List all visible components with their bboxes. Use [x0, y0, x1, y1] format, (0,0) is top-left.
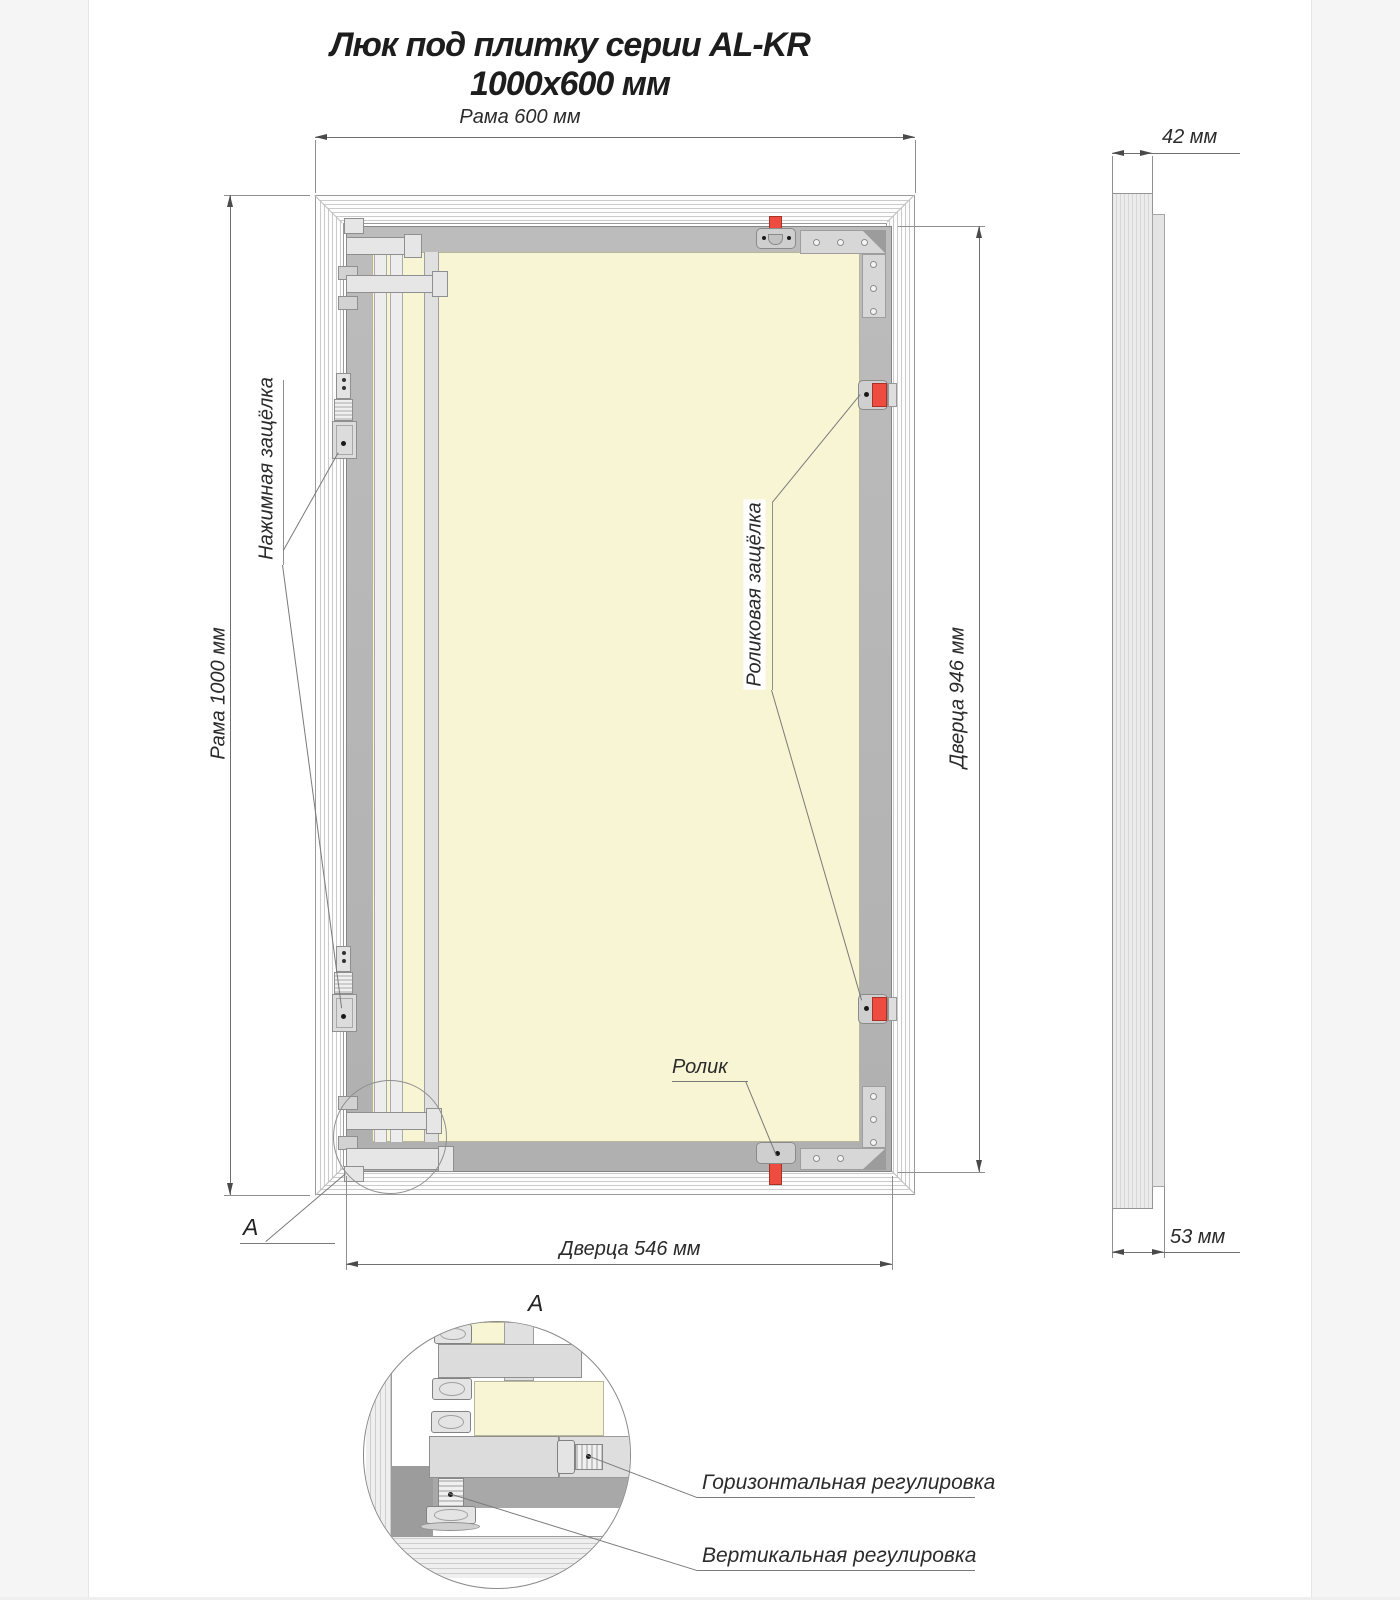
extension-line	[224, 195, 310, 196]
page-gutter-right	[1311, 0, 1400, 1600]
extension-line	[915, 140, 916, 193]
hinge-arm-bracket	[404, 234, 422, 258]
leader-shelf	[772, 502, 773, 690]
detail-hinge-arm-upper	[438, 1344, 582, 1378]
page-gutter-left	[0, 0, 89, 1600]
detail-frame-left-band	[366, 1322, 392, 1536]
roller-latch-lower	[856, 990, 902, 1028]
push-latch-head	[336, 373, 351, 399]
push-latch-spring	[334, 399, 353, 421]
dim-line-depth-frame	[1112, 153, 1240, 154]
dim-arrow	[227, 195, 233, 207]
label-roller-latch-text: Роликовая защёлка	[744, 499, 766, 689]
detail-a-label-main: A	[243, 1214, 258, 1241]
dim-text-depth-frame: 42 мм	[1162, 126, 1217, 149]
hinge-arm-lower	[346, 275, 438, 293]
dim-line-depth-total	[1112, 1252, 1240, 1253]
label-underline	[672, 1081, 748, 1082]
push-latch-lower	[332, 946, 358, 1032]
dim-line-door-height	[979, 226, 980, 1172]
detail-bolt	[434, 1324, 472, 1344]
push-latch-upper	[332, 373, 358, 459]
dim-text-door-width: Дверца 546 мм	[530, 1238, 730, 1261]
extension-line	[898, 226, 985, 227]
drawing-page: Люк под плитку серии AL-KR 1000x600 мм	[0, 0, 1400, 1600]
extension-line	[898, 1172, 985, 1173]
detail-a-marker-circle	[333, 1080, 447, 1194]
detail-frame-bottom-band	[364, 1536, 631, 1578]
dim-text-door-height: Дверца 946 мм	[947, 613, 970, 783]
roller-bottom	[756, 1142, 798, 1188]
label-horizontal-adjustment: Горизонтальная регулировка	[702, 1471, 995, 1495]
roller-latch-keeper	[888, 383, 897, 407]
corner-bracket-bottom-right	[800, 1086, 886, 1172]
roller-top	[756, 216, 798, 250]
leader-dot	[864, 1006, 869, 1011]
dim-text-frame-height: Рама 1000 мм	[208, 614, 231, 774]
detail-view-circle	[363, 1321, 631, 1589]
side-view-frame-profile	[1112, 193, 1153, 1209]
dim-arrow	[1112, 1249, 1124, 1255]
detail-hinge-arm-lower	[429, 1436, 559, 1478]
push-latch-head	[336, 946, 351, 972]
dim-arrow	[346, 1261, 358, 1267]
hinge-pivot-bar	[424, 252, 439, 1142]
leader-shelf	[283, 380, 284, 565]
label-roller-latch: Роликовая защёлка	[744, 495, 767, 695]
hinge-channel-strip	[374, 252, 387, 1142]
screw-dot	[787, 236, 791, 240]
hinge-clip	[338, 296, 358, 310]
dim-arrow	[1152, 1249, 1164, 1255]
dim-arrow	[227, 1183, 233, 1195]
label-push-latch: Нажимная защёлка	[256, 369, 279, 569]
roller-latch-roller	[872, 383, 887, 407]
dim-arrow	[315, 134, 327, 140]
roller-latch-keeper	[888, 997, 897, 1021]
detail-bolt	[431, 1411, 471, 1433]
hinge-channel-strip	[390, 252, 403, 1142]
extension-line	[1152, 156, 1153, 193]
corner-bracket-top-right	[800, 230, 886, 320]
extension-line	[1164, 1187, 1165, 1258]
leader-line	[265, 1173, 346, 1242]
extension-line	[346, 1176, 347, 1270]
hinge-arm-end	[432, 271, 448, 297]
hinge-arm-upper	[346, 237, 408, 255]
label-underline	[240, 1243, 335, 1244]
push-latch-body	[332, 994, 357, 1032]
dim-arrow	[1140, 150, 1152, 156]
extension-line	[1112, 156, 1113, 193]
dim-arrow	[976, 1160, 982, 1172]
label-underline	[697, 1497, 975, 1498]
dim-line-door-width	[346, 1264, 892, 1265]
leader-dot	[341, 441, 346, 446]
dim-arrow	[880, 1261, 892, 1267]
hinge-bolt-top	[344, 218, 364, 234]
dim-text-depth-total: 53 мм	[1170, 1226, 1225, 1249]
extension-line	[315, 140, 316, 193]
roller-latch-roller	[872, 997, 887, 1021]
detail-horizontal-screw-nut	[557, 1440, 575, 1474]
extension-line	[892, 1176, 893, 1270]
dim-arrow	[976, 226, 982, 238]
leader-dot	[864, 392, 869, 397]
leader-dot	[341, 1014, 346, 1019]
label-vertical-adjustment: Вертикальная регулировка	[702, 1544, 977, 1568]
dim-line-frame-width	[315, 137, 915, 138]
detail-washer	[420, 1522, 480, 1531]
door-panel-surface	[372, 252, 860, 1142]
screw-dot	[762, 236, 766, 240]
roller-latch-upper	[856, 376, 902, 414]
dim-text-frame-width: Рама 600 мм	[420, 106, 620, 129]
dim-arrow	[1112, 150, 1124, 156]
detail-panel-main	[474, 1381, 604, 1436]
extension-line	[224, 1195, 310, 1196]
label-underline	[697, 1570, 975, 1571]
label-roller: Ролик	[672, 1056, 728, 1079]
dim-arrow	[903, 134, 915, 140]
side-view-door-flange	[1152, 214, 1165, 1187]
detail-a-label: A	[528, 1290, 543, 1317]
detail-bolt	[432, 1378, 472, 1400]
drawing-title: Люк под плитку серии AL-KR 1000x600 мм	[290, 26, 850, 104]
